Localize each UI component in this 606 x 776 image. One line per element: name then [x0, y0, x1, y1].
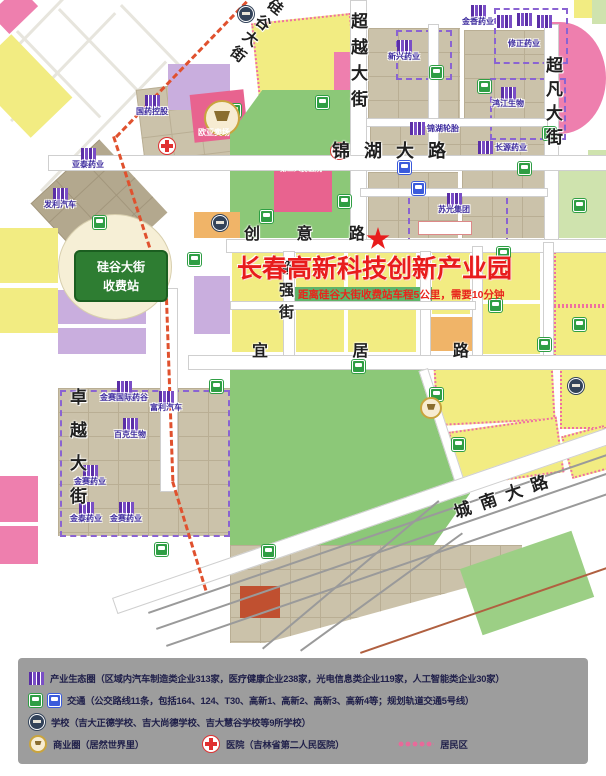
parcel-lavender: [58, 328, 146, 354]
company-suguang: 苏光集团: [438, 193, 470, 214]
hospital-cross-icon: [158, 137, 176, 155]
building-icon: [29, 672, 44, 685]
bus-stop-icon: [573, 199, 586, 212]
bus-stop-icon: [316, 96, 329, 109]
bus-stop-icon: [262, 545, 275, 558]
park-subtitle: 距离硅谷大街收费站车程5公里，需要10分钟: [298, 288, 505, 303]
company-jinxiang: 金香药业: [462, 5, 494, 26]
company-label: 富利汽车: [150, 404, 182, 412]
bus-stop-icon: [155, 543, 168, 556]
street-label-jinhu: 锦湖大路: [332, 142, 460, 160]
building-icon: [537, 15, 552, 28]
bus-stop-icon: [260, 210, 273, 223]
toll-badge-line1: 硅谷大街: [76, 258, 166, 277]
bus-stop-icon: [188, 253, 201, 266]
metro-stop-icon: [398, 161, 411, 174]
toll-station-badge: 硅谷大街 收费站: [74, 250, 168, 302]
company-fuli: 富利汽车: [150, 391, 182, 412]
bus-stop-icon: [452, 438, 465, 451]
company-jinhu-tire: 锦湖轮胎: [410, 122, 459, 135]
legend-row-mixed: 商业圈（居然世界里） 医院（吉林省第二人民医院） 居民区: [29, 733, 577, 755]
company-label: 苏光集团: [438, 206, 470, 214]
parcel-residential: [560, 363, 606, 429]
street-label-chuangyi: 创 意 路: [244, 227, 381, 243]
park-title: 长春高新科技创新产业园: [237, 249, 512, 285]
bus-stop-icon: [518, 162, 531, 175]
hospital-block-label: 第二人民医院: [280, 166, 322, 174]
mall-block-label: 欧亚卖场: [198, 128, 230, 138]
parcel-pink: [0, 526, 38, 564]
company-xinxing: 新兴药业: [388, 40, 420, 61]
company-label: 发利汽车: [44, 201, 76, 209]
company-label: 金赛国际药谷: [100, 394, 148, 402]
company-guoyao: 国药控股: [136, 95, 168, 116]
company-label: 新兴药业: [388, 53, 420, 61]
company-baike: 百克生物: [114, 418, 146, 439]
school-icon: [568, 378, 584, 394]
company-label: 鸿江生物: [492, 100, 524, 108]
parcel-pink: [0, 476, 38, 522]
legend-row-school: 学校（吉大正德学校、吉大尚德学校、吉大慧谷学校等9所学校）: [29, 711, 577, 733]
bus-stop-icon: [210, 380, 223, 393]
legend-transport-text: 交通（公交路线11条，包括164、124、T30、高新1、高新2、高新3、高新4…: [67, 693, 474, 707]
company-label: 国药控股: [136, 108, 168, 116]
small-note-box: [418, 221, 472, 235]
bus-stop-icon: [338, 195, 351, 208]
school-icon: [238, 6, 254, 22]
company-label: 金香药业: [462, 18, 494, 26]
building-icon: [410, 122, 425, 135]
parcel-residential: [0, 288, 58, 333]
legend-row-transport: 交通（公交路线11条，包括164、124、T30、高新1、高新2、高新3、高新4…: [29, 689, 577, 711]
building-icon: [478, 141, 493, 154]
bus-icon: [29, 694, 42, 707]
parcel-green: [592, 0, 606, 24]
parcel-residential: [554, 248, 606, 306]
bus-stop-icon: [478, 80, 491, 93]
legend-panel: 产业生态圈（区域内汽车制造类企业313家，医疗健康企业238家，光电信息类企业1…: [18, 658, 588, 764]
company-fali: 发利汽车: [44, 188, 76, 209]
parcel-residential: [0, 228, 58, 283]
mall-cart-icon: [420, 397, 442, 419]
street-label-yiju: 宜 居 路: [252, 344, 509, 360]
legend-row-industry: 产业生态圈（区域内汽车制造类企业313家，医疗健康企业238家，光电信息类企业1…: [29, 667, 577, 689]
company-hongjiang: 鸿江生物: [492, 87, 524, 108]
school-icon: [29, 714, 45, 730]
toll-badge-line2: 收费站: [76, 277, 166, 296]
parcel-lavender: [194, 276, 230, 334]
company-label: 亚泰药业: [72, 161, 104, 169]
legend-mall-text: 商业圈（居然世界里）: [53, 737, 144, 751]
legend-hospital-text: 医院（吉林省第二人民医院）: [226, 737, 344, 751]
company-xiuzheng: 修正药业: [508, 40, 540, 48]
company-jinsai-intl: 金赛国际药谷: [100, 381, 148, 402]
map-poster: 国药控股 亚泰药业 发利汽车 新兴药业 金香药业 修正药业 鸿江生物 锦湖轮胎 …: [0, 0, 606, 776]
parcel-residential: [554, 306, 606, 360]
company-label: 百克生物: [114, 431, 146, 439]
road-internal: [428, 24, 439, 158]
building-icon: [497, 15, 512, 28]
street-label-chaoyue: 超越大街: [349, 12, 366, 116]
bus-stop-icon: [352, 360, 365, 373]
company-label: 金赛药业: [110, 515, 142, 523]
bus-stop-icon: [93, 216, 106, 229]
hospital-cross-icon: [202, 735, 220, 753]
company-yatai: 亚泰药业: [72, 148, 104, 169]
company-label: 长源药业: [495, 144, 527, 152]
metro-stop-icon: [412, 182, 425, 195]
company-jinsai2: 金赛药业: [110, 502, 142, 523]
legend-residential-text: 居民区: [440, 737, 467, 751]
residential-dots-icon: [398, 741, 434, 748]
bus-stop-icon: [430, 66, 443, 79]
legend-school-text: 学校（吉大正德学校、吉大尚德学校、吉大慧谷学校等9所学校）: [51, 715, 311, 729]
bus-stop-icon: [573, 318, 586, 331]
company-changyuan: 长源药业: [478, 141, 527, 154]
street-label-chaofan: 超凡大街: [544, 56, 561, 152]
school-icon: [212, 215, 228, 231]
street-label-zhuoyue: 卓越大街: [68, 388, 85, 520]
building-icon: [517, 13, 532, 26]
company-label: 锦湖轮胎: [427, 125, 459, 133]
mall-icon: [29, 735, 47, 753]
legend-industry-text: 产业生态圈（区域内汽车制造类企业313家，医疗健康企业238家，光电信息类企业1…: [50, 671, 504, 685]
metro-icon: [48, 694, 61, 707]
bus-stop-icon: [538, 338, 551, 351]
